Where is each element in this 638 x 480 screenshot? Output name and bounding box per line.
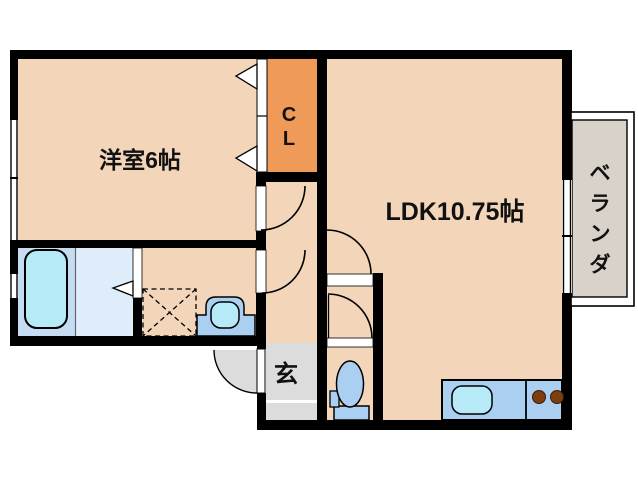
veranda-label-char-3: ン bbox=[590, 223, 611, 246]
wall-right-lower bbox=[562, 293, 572, 420]
wall-center-vertical bbox=[317, 59, 327, 420]
entrance-label: 玄 bbox=[274, 360, 298, 388]
kitchen-sink bbox=[452, 386, 492, 414]
wall-closet-bottom bbox=[256, 172, 327, 182]
washbasin-bowl bbox=[211, 302, 239, 328]
bathroom-window bbox=[10, 272, 18, 300]
wall-entrance-left-upper bbox=[257, 336, 266, 349]
veranda-label-char-1: ベ bbox=[590, 162, 611, 185]
toilet-tank bbox=[334, 406, 369, 420]
wall-hall-left-a bbox=[256, 181, 266, 186]
bedroom-window bbox=[10, 118, 18, 240]
wall-hall-left-b bbox=[256, 231, 266, 250]
wall-left-mid bbox=[10, 248, 18, 272]
stove-burner-right bbox=[551, 391, 564, 404]
wall-bathroom-bottom bbox=[10, 336, 266, 346]
wall-left-upper bbox=[10, 59, 18, 118]
wall-left-lower bbox=[10, 300, 18, 336]
hallway-floor bbox=[266, 182, 317, 343]
wall-bedroom-bottom bbox=[10, 240, 266, 248]
toilet-bowl bbox=[337, 361, 364, 407]
floor-plan-svg: 洋室6帖 LDK10.75帖 C L 玄 ベ ラ ン ダ bbox=[0, 0, 638, 480]
bedroom-label: 洋室6帖 bbox=[99, 147, 181, 173]
closet-label-line1: C bbox=[282, 104, 296, 126]
wall-bottom bbox=[257, 420, 572, 430]
wall-top bbox=[10, 50, 572, 59]
entrance-step-line bbox=[266, 400, 317, 403]
entrance-door-leaf bbox=[257, 349, 265, 393]
kitchen-counter bbox=[442, 380, 564, 420]
veranda-label-char-2: ラ bbox=[590, 193, 611, 216]
ldk-veranda-window bbox=[562, 180, 572, 293]
wall-entrance-left-lower bbox=[257, 393, 266, 420]
wall-toilet-right bbox=[373, 273, 383, 420]
ldk-label: LDK10.75帖 bbox=[386, 198, 525, 226]
bathtub bbox=[25, 250, 67, 328]
stove-burner-left bbox=[533, 391, 546, 404]
wall-hall-left-c bbox=[256, 293, 266, 336]
ldk-floor bbox=[327, 59, 562, 420]
veranda-label-char-4: ダ bbox=[590, 253, 611, 277]
wall-bath-washroom bbox=[133, 298, 142, 336]
floor-plan: 洋室6帖 LDK10.75帖 C L 玄 ベ ラ ン ダ bbox=[0, 0, 638, 480]
closet-label-line2: L bbox=[283, 128, 295, 150]
